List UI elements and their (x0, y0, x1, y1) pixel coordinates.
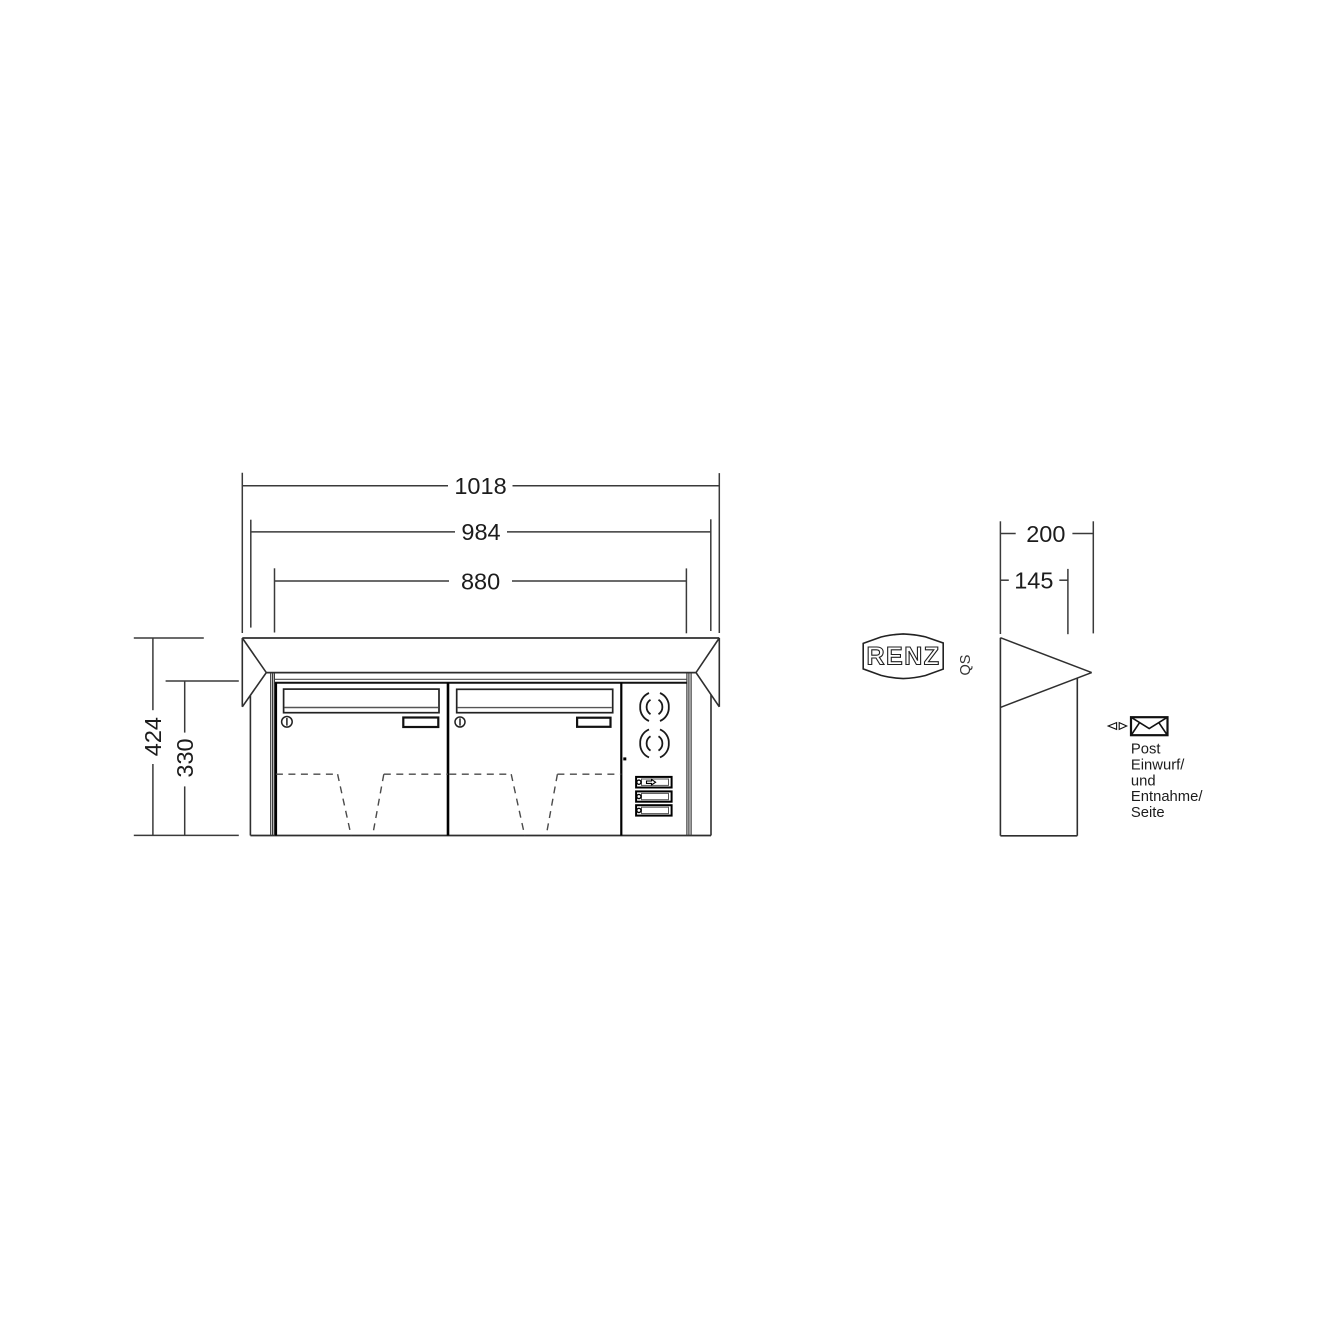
svg-text:Einwurf/: Einwurf/ (1131, 758, 1185, 774)
svg-text:424: 424 (140, 717, 166, 756)
svg-text:RENZ: RENZ (866, 643, 940, 671)
svg-text:Seite: Seite (1131, 805, 1165, 821)
svg-text:und: und (1131, 773, 1156, 789)
svg-text:1018: 1018 (454, 473, 506, 499)
svg-text:984: 984 (461, 519, 500, 545)
svg-text:145: 145 (1014, 568, 1053, 594)
svg-text:880: 880 (461, 568, 500, 594)
svg-text:Post: Post (1131, 742, 1161, 758)
svg-text:200: 200 (1026, 521, 1065, 547)
svg-text:330: 330 (172, 738, 198, 777)
svg-text:Entnahme/: Entnahme/ (1131, 789, 1203, 805)
svg-text:QS: QS (958, 655, 974, 676)
